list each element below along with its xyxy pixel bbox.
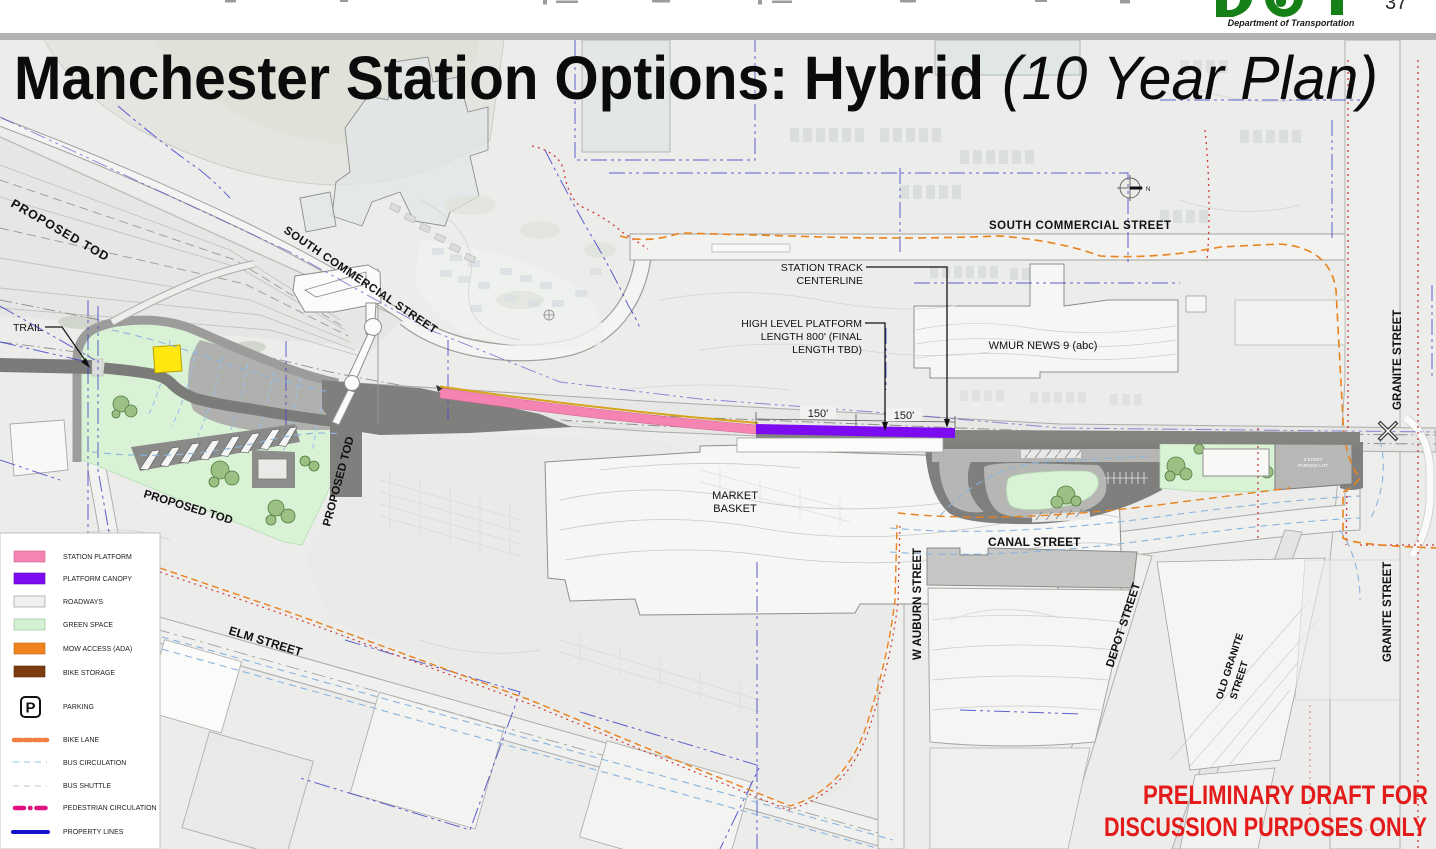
svg-text:TRAIL: TRAIL [13, 322, 43, 334]
svg-text:150': 150' [894, 410, 914, 422]
svg-text:MOW ACCESS (ADA): MOW ACCESS (ADA) [63, 646, 132, 653]
svg-text:SOUTH COMMERCIAL STREET: SOUTH COMMERCIAL STREET [989, 220, 1172, 232]
svg-text:Department of Transportation: Department of Transportation [1228, 18, 1355, 28]
svg-text:W AUBURN STREET: W AUBURN STREET [912, 548, 924, 660]
svg-text:ROADWAYS: ROADWAYS [63, 599, 103, 606]
svg-text:BASKET: BASKET [713, 503, 757, 515]
svg-text:GRANITE STREET: GRANITE STREET [1392, 310, 1404, 410]
svg-text:P: P [25, 700, 35, 717]
svg-text:N: N [1146, 187, 1150, 193]
svg-text:WMUR NEWS 9 (abc): WMUR NEWS 9 (abc) [989, 340, 1098, 352]
svg-text:BIKE STORAGE: BIKE STORAGE [63, 670, 115, 677]
svg-text:150': 150' [808, 408, 828, 420]
svg-text:CANAL STREET: CANAL STREET [988, 535, 1081, 549]
svg-text:MARKET: MARKET [712, 490, 758, 502]
svg-text:BIKE LANE: BIKE LANE [63, 737, 100, 744]
svg-text:37: 37 [1385, 0, 1407, 14]
svg-text:GRANITE STREET: GRANITE STREET [1382, 562, 1394, 662]
svg-text:PRELIMINARY DRAFT FOR: PRELIMINARY DRAFT FOR [1143, 780, 1428, 810]
svg-text:PARKING: PARKING [63, 704, 94, 711]
svg-text:DISCUSSION PURPOSES ONLY: DISCUSSION PURPOSES ONLY [1104, 812, 1427, 842]
svg-text:BUS CIRCULATION: BUS CIRCULATION [63, 760, 126, 767]
svg-text:STATION TRACK: STATION TRACK [781, 262, 863, 274]
svg-text:STATION PLATFORM: STATION PLATFORM [63, 554, 132, 561]
svg-text:Manchester Station Options: Hy: Manchester Station Options: Hybrid [14, 44, 984, 112]
svg-text:PROPERTY LINES: PROPERTY LINES [63, 829, 124, 836]
svg-text:PEDESTRIAN CIRCULATION: PEDESTRIAN CIRCULATION [63, 805, 157, 812]
svg-text:LENGTH TBD): LENGTH TBD) [792, 344, 862, 356]
svg-text:BUS SHUTTLE: BUS SHUTTLE [63, 783, 112, 790]
svg-text:LENGTH 800' (FINAL: LENGTH 800' (FINAL [761, 331, 862, 343]
svg-text:PLATFORM CANOPY: PLATFORM CANOPY [63, 576, 132, 583]
svg-text:CENTERLINE: CENTERLINE [796, 275, 863, 287]
svg-text:HIGH LEVEL PLATFORM: HIGH LEVEL PLATFORM [741, 318, 862, 330]
svg-text:GREEN SPACE: GREEN SPACE [63, 622, 113, 629]
svg-text:(10 Year Plan): (10 Year Plan) [1002, 44, 1378, 112]
svg-text:PARKING LOT: PARKING LOT [1298, 463, 1328, 468]
svg-text:3 STORY: 3 STORY [1303, 457, 1322, 462]
